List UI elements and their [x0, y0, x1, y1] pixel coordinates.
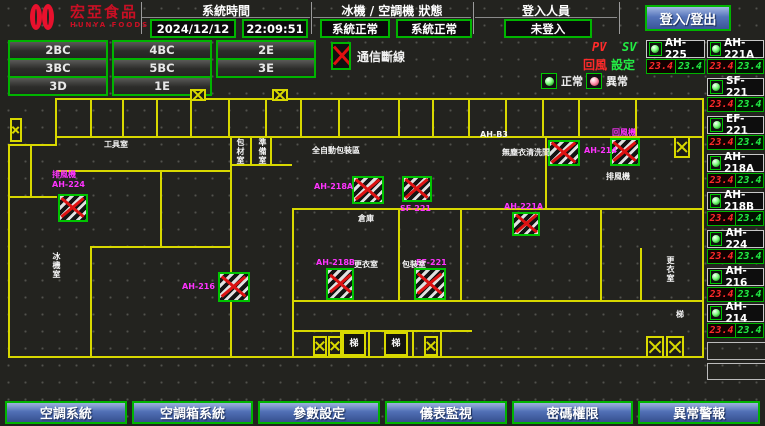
pv-name-label: 回風	[583, 56, 607, 73]
unit-name: AH-218A	[724, 151, 763, 175]
sidebar-unit-AH-225[interactable]: AH-225	[646, 40, 705, 58]
ahu-unit-alarm-marker[interactable]	[326, 268, 354, 300]
wall-segment	[505, 98, 507, 138]
led	[651, 45, 659, 53]
wall-segment	[292, 210, 294, 356]
floor-button-3E[interactable]: 3E	[216, 58, 316, 78]
led	[712, 273, 720, 281]
unit-temps-AH-218A: 23.423.4	[707, 173, 764, 188]
wall-segment	[250, 136, 252, 164]
ahu-unit-alarm-marker[interactable]	[610, 138, 640, 166]
pv-temp: 23.4	[708, 250, 736, 263]
divider	[311, 2, 312, 34]
wall-segment	[8, 356, 704, 358]
unit-name: SF-221	[726, 75, 763, 99]
wall-segment	[398, 208, 400, 302]
sv-temp: 23.4	[676, 60, 704, 73]
wall-segment	[270, 136, 272, 164]
wall-segment	[412, 332, 414, 356]
wall-segment	[8, 144, 10, 358]
floor-button-2BC[interactable]: 2BC	[8, 40, 108, 60]
sidebar-unit-AH-218A[interactable]: AH-218A	[707, 154, 764, 172]
legend-normal: 正常	[541, 73, 583, 89]
company-logo: 宏亞食品 HUNYA FOODS	[70, 4, 149, 29]
status-led-icon	[710, 194, 721, 208]
nav-button-空調系統[interactable]: 空調系統	[5, 401, 127, 424]
floor-button-3D[interactable]: 3D	[8, 76, 108, 96]
pv-temp: 23.4	[708, 98, 736, 111]
plan-label: 更衣室	[354, 260, 378, 269]
wall-segment	[156, 98, 158, 138]
wall-segment	[545, 136, 547, 210]
wall-segment	[55, 136, 704, 138]
stair-elevator-icon	[272, 89, 288, 101]
sv-temp: 23.4	[736, 212, 763, 225]
comm-loss-legend: 通信斷線	[331, 42, 405, 70]
wall-segment	[398, 98, 400, 138]
nav-button-空調箱系統[interactable]: 空調箱系統	[132, 401, 254, 424]
led	[712, 83, 720, 91]
sv-temp: 23.4	[736, 174, 763, 187]
stair-elevator-icon	[328, 336, 342, 356]
empty-slot	[707, 363, 765, 380]
sv-temp: 23.4	[736, 288, 763, 301]
sv-temp: 23.4	[736, 98, 763, 111]
ahu-unit-alarm-marker[interactable]	[548, 140, 580, 166]
wall-segment	[265, 98, 267, 138]
empty-slot	[707, 342, 765, 360]
unit-name: AH-224	[725, 227, 763, 251]
plan-label: 倉庫	[358, 214, 374, 223]
login-logout-button[interactable]: 登入/登出	[645, 5, 731, 31]
plan-label: AH-216	[182, 282, 215, 291]
unit-temps-AH-221A: 23.423.4	[707, 59, 764, 74]
status-led-icon	[710, 232, 722, 246]
pv-temp: 23.4	[647, 60, 676, 73]
unit-name: AH-214	[725, 301, 763, 325]
plan-label: 排風機	[52, 170, 76, 179]
status-led-icon	[649, 42, 662, 56]
ahu-unit-alarm-marker[interactable]	[58, 194, 88, 222]
plan-label: 回風機	[612, 128, 636, 137]
plan-label: AH-221A	[504, 202, 543, 211]
wall-segment	[30, 144, 32, 198]
abnormal-led-icon	[586, 73, 602, 89]
sv-temp: 23.4	[736, 136, 763, 149]
wall-segment	[600, 210, 602, 302]
ahu-unit-alarm-marker[interactable]	[512, 212, 540, 236]
status-led-icon	[710, 306, 722, 320]
wall-segment	[340, 332, 342, 356]
sv-header-label: SV	[622, 40, 636, 54]
stair-elevator-icon	[10, 118, 22, 142]
unit-temps-AH-216: 23.423.4	[707, 287, 764, 302]
logo-subname: HUNYA FOODS	[70, 21, 149, 29]
sv-name-label: 設定	[611, 56, 635, 73]
led	[712, 309, 720, 317]
plan-label: 更衣室	[666, 256, 675, 283]
floor-button-2E[interactable]: 2E	[216, 40, 316, 60]
login-person-value: 未登入	[504, 19, 592, 38]
plan-label: 排風機	[606, 172, 630, 181]
unit-temps-AH-224: 23.423.4	[707, 249, 764, 264]
plan-label: 冰機室	[52, 252, 61, 279]
wall-segment	[57, 170, 232, 172]
divider	[619, 2, 620, 34]
pv-header-label: PV	[592, 40, 606, 54]
wall-segment	[702, 98, 704, 358]
comm-loss-icon	[331, 42, 351, 70]
wall-segment	[230, 136, 232, 358]
wall-segment	[292, 208, 704, 210]
wall-segment	[90, 246, 232, 248]
sidebar-unit-AH-218B[interactable]: AH-218B	[707, 192, 764, 210]
status-led-icon	[710, 156, 721, 170]
ahu-status-value: 系統正常	[396, 19, 472, 38]
bottom-nav-bar: 空調系統空調箱系統參數設定儀表監視密碼權限異常警報	[0, 399, 765, 426]
wall-segment	[90, 248, 92, 356]
system-date-value: 2024/12/12	[150, 19, 236, 38]
stair-elevator-icon	[666, 336, 684, 358]
stair-elevator-icon	[424, 336, 438, 356]
elevator-label: 梯	[342, 332, 366, 356]
elevator-label: 梯	[384, 332, 408, 356]
normal-led-icon	[541, 73, 557, 89]
wall-segment	[440, 332, 442, 356]
floor-button-1E[interactable]: 1E	[112, 76, 212, 96]
wall-segment	[122, 98, 124, 138]
wall-segment	[468, 98, 470, 138]
nav-button-參數設定[interactable]: 參數設定	[258, 401, 380, 424]
login-person-title: 登入人員	[475, 2, 617, 19]
wall-segment	[190, 98, 192, 138]
wall-segment	[8, 196, 57, 198]
led	[712, 197, 720, 205]
sv-temp: 23.4	[736, 60, 763, 73]
unit-temps-AH-225: 23.423.4	[646, 59, 705, 74]
logo-name: 宏亞食品	[70, 4, 149, 21]
plan-label: 梯	[676, 310, 684, 319]
legend-abnormal: 異常	[586, 73, 628, 89]
legend-normal-label: 正常	[561, 73, 583, 89]
led	[713, 121, 721, 129]
comm-loss-label: 通信斷線	[357, 48, 405, 65]
unit-name: AH-216	[725, 265, 763, 289]
wall-segment	[230, 164, 292, 166]
divider	[473, 2, 474, 34]
unit-temps-EF-221: 23.423.4	[707, 135, 764, 150]
floor-button-3BC[interactable]: 3BC	[8, 58, 108, 78]
wall-segment	[542, 98, 544, 138]
plan-label: AH-224	[52, 180, 85, 189]
machine-status-title: 冰機 / 空調機 狀態	[313, 2, 471, 19]
wall-segment	[292, 300, 704, 302]
status-led-icon	[710, 270, 722, 284]
ahu-unit-alarm-marker[interactable]	[218, 272, 250, 302]
ahu-unit-alarm-marker[interactable]	[352, 176, 384, 204]
floor-button-4BC[interactable]: 4BC	[112, 40, 212, 60]
pv-temp: 23.4	[708, 212, 736, 225]
wall-segment	[90, 98, 92, 138]
led	[712, 235, 720, 243]
scada-screen: 宏亞食品 HUNYA FOODS 系統時間 2024/12/12 22:09:5…	[0, 0, 765, 426]
unit-temps-SF-221: 23.423.4	[707, 97, 764, 112]
wall-segment	[460, 208, 462, 302]
pv-temp: 23.4	[708, 288, 736, 301]
wall-segment	[300, 98, 302, 138]
wall-segment	[8, 144, 57, 146]
unit-name: AH-218B	[724, 189, 763, 213]
plan-label: 全自動包裝區	[312, 146, 360, 155]
sv-temp: 23.4	[736, 250, 763, 263]
status-led-icon	[710, 42, 721, 56]
plan-label: AH-B3	[480, 130, 508, 139]
wall-segment	[55, 98, 704, 100]
stair-elevator-icon	[674, 136, 690, 158]
wall-segment	[292, 330, 472, 332]
status-led-icon	[710, 118, 723, 132]
sidebar-unit-SF-221[interactable]: SF-221	[707, 78, 764, 96]
floor-button-5BC[interactable]: 5BC	[112, 58, 212, 78]
wall-segment	[368, 332, 370, 356]
plan-label: 無塵衣清洗間	[502, 148, 550, 157]
stair-elevator-icon	[646, 336, 664, 358]
sidebar-unit-AH-224[interactable]: AH-224	[707, 230, 764, 248]
unit-temps-AH-218B: 23.423.4	[707, 211, 764, 226]
wall-segment	[640, 248, 642, 302]
wall-segment	[160, 170, 162, 248]
plan-label: 包材室	[236, 138, 245, 165]
legend-abnormal-label: 異常	[606, 73, 628, 89]
wall-segment	[55, 98, 57, 146]
plan-label: 工具室	[104, 140, 128, 149]
sidebar-unit-EF-221[interactable]: EF-221	[707, 116, 764, 134]
plan-label: AH-218B	[316, 258, 355, 267]
header-bar: 宏亞食品 HUNYA FOODS 系統時間 2024/12/12 22:09:5…	[0, 0, 765, 37]
led	[712, 159, 720, 167]
plan-label: AH-218A	[314, 182, 353, 191]
unit-temps-AH-214: 23.423.4	[707, 323, 764, 338]
chiller-status-value: 系統正常	[320, 19, 390, 38]
ahu-unit-alarm-marker[interactable]	[414, 268, 446, 300]
sidebar-unit-AH-214[interactable]: AH-214	[707, 304, 764, 322]
led	[712, 45, 720, 53]
unit-name: EF-221	[726, 113, 763, 137]
ahu-unit-alarm-marker[interactable]	[402, 176, 432, 202]
sv-temp: 23.4	[736, 324, 763, 337]
pv-temp: 23.4	[708, 136, 736, 149]
plan-label: 準備室	[258, 138, 267, 165]
stair-elevator-icon	[313, 336, 327, 356]
wall-segment	[432, 98, 434, 138]
pv-temp: 23.4	[708, 60, 736, 73]
nav-button-儀表監視[interactable]: 儀表監視	[385, 401, 507, 424]
nav-button-密碼權限[interactable]: 密碼權限	[512, 401, 634, 424]
wall-segment	[635, 98, 637, 138]
system-time-title: 系統時間	[142, 2, 310, 19]
unit-name: AH-221A	[724, 37, 763, 61]
plan-label: SF-221	[400, 204, 431, 213]
system-time-value: 22:09:51	[242, 19, 308, 38]
wall-segment	[228, 98, 230, 138]
company-logo-icon	[30, 4, 64, 32]
plan-label: EF-221	[416, 258, 447, 267]
status-led-icon	[710, 80, 723, 94]
sidebar-unit-AH-216[interactable]: AH-216	[707, 268, 764, 286]
sidebar-unit-AH-221A[interactable]: AH-221A	[707, 40, 764, 58]
wall-segment	[578, 98, 580, 138]
pv-temp: 23.4	[708, 324, 736, 337]
unit-name: AH-225	[665, 37, 704, 61]
wall-segment	[338, 98, 340, 138]
nav-button-異常警報[interactable]: 異常警報	[638, 401, 760, 424]
pv-temp: 23.4	[708, 174, 736, 187]
